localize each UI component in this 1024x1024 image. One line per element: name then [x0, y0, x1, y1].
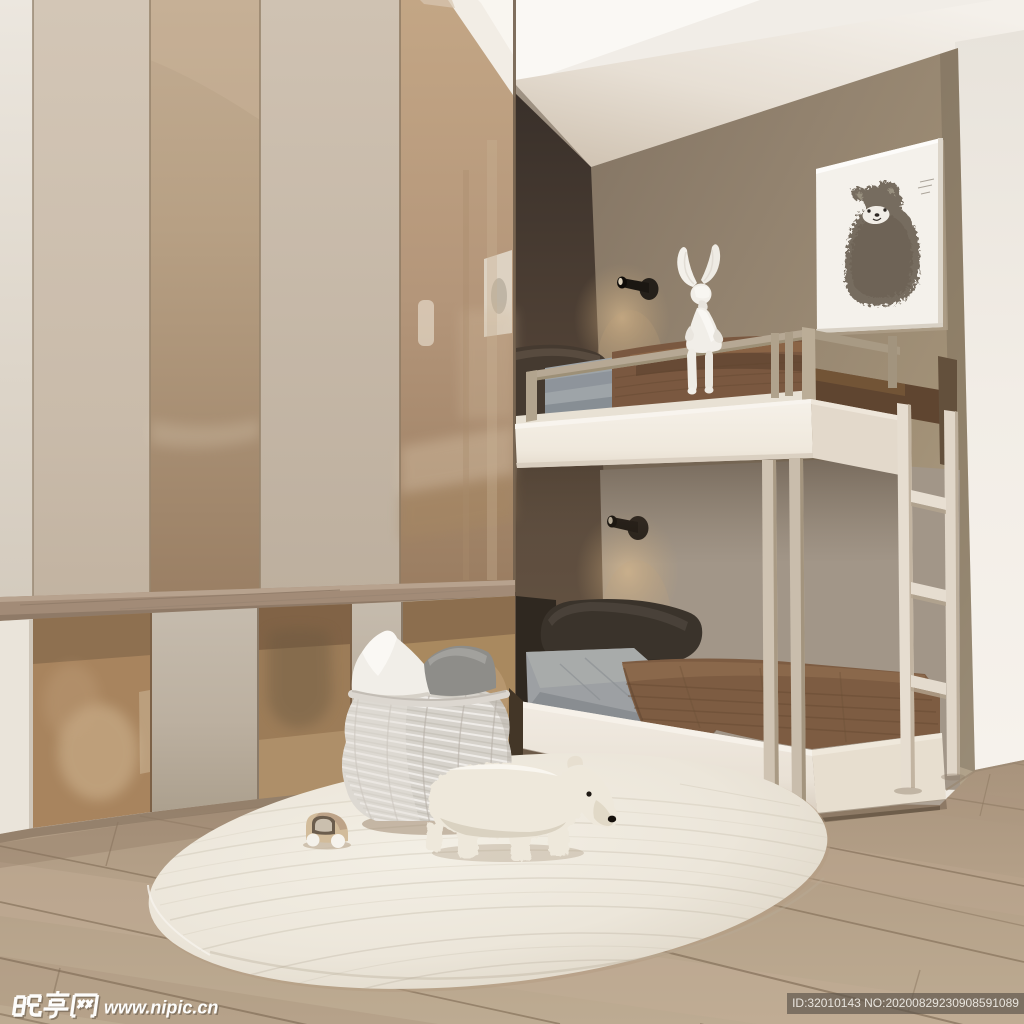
svg-text:www.nipic.cn: www.nipic.cn [104, 998, 218, 1018]
